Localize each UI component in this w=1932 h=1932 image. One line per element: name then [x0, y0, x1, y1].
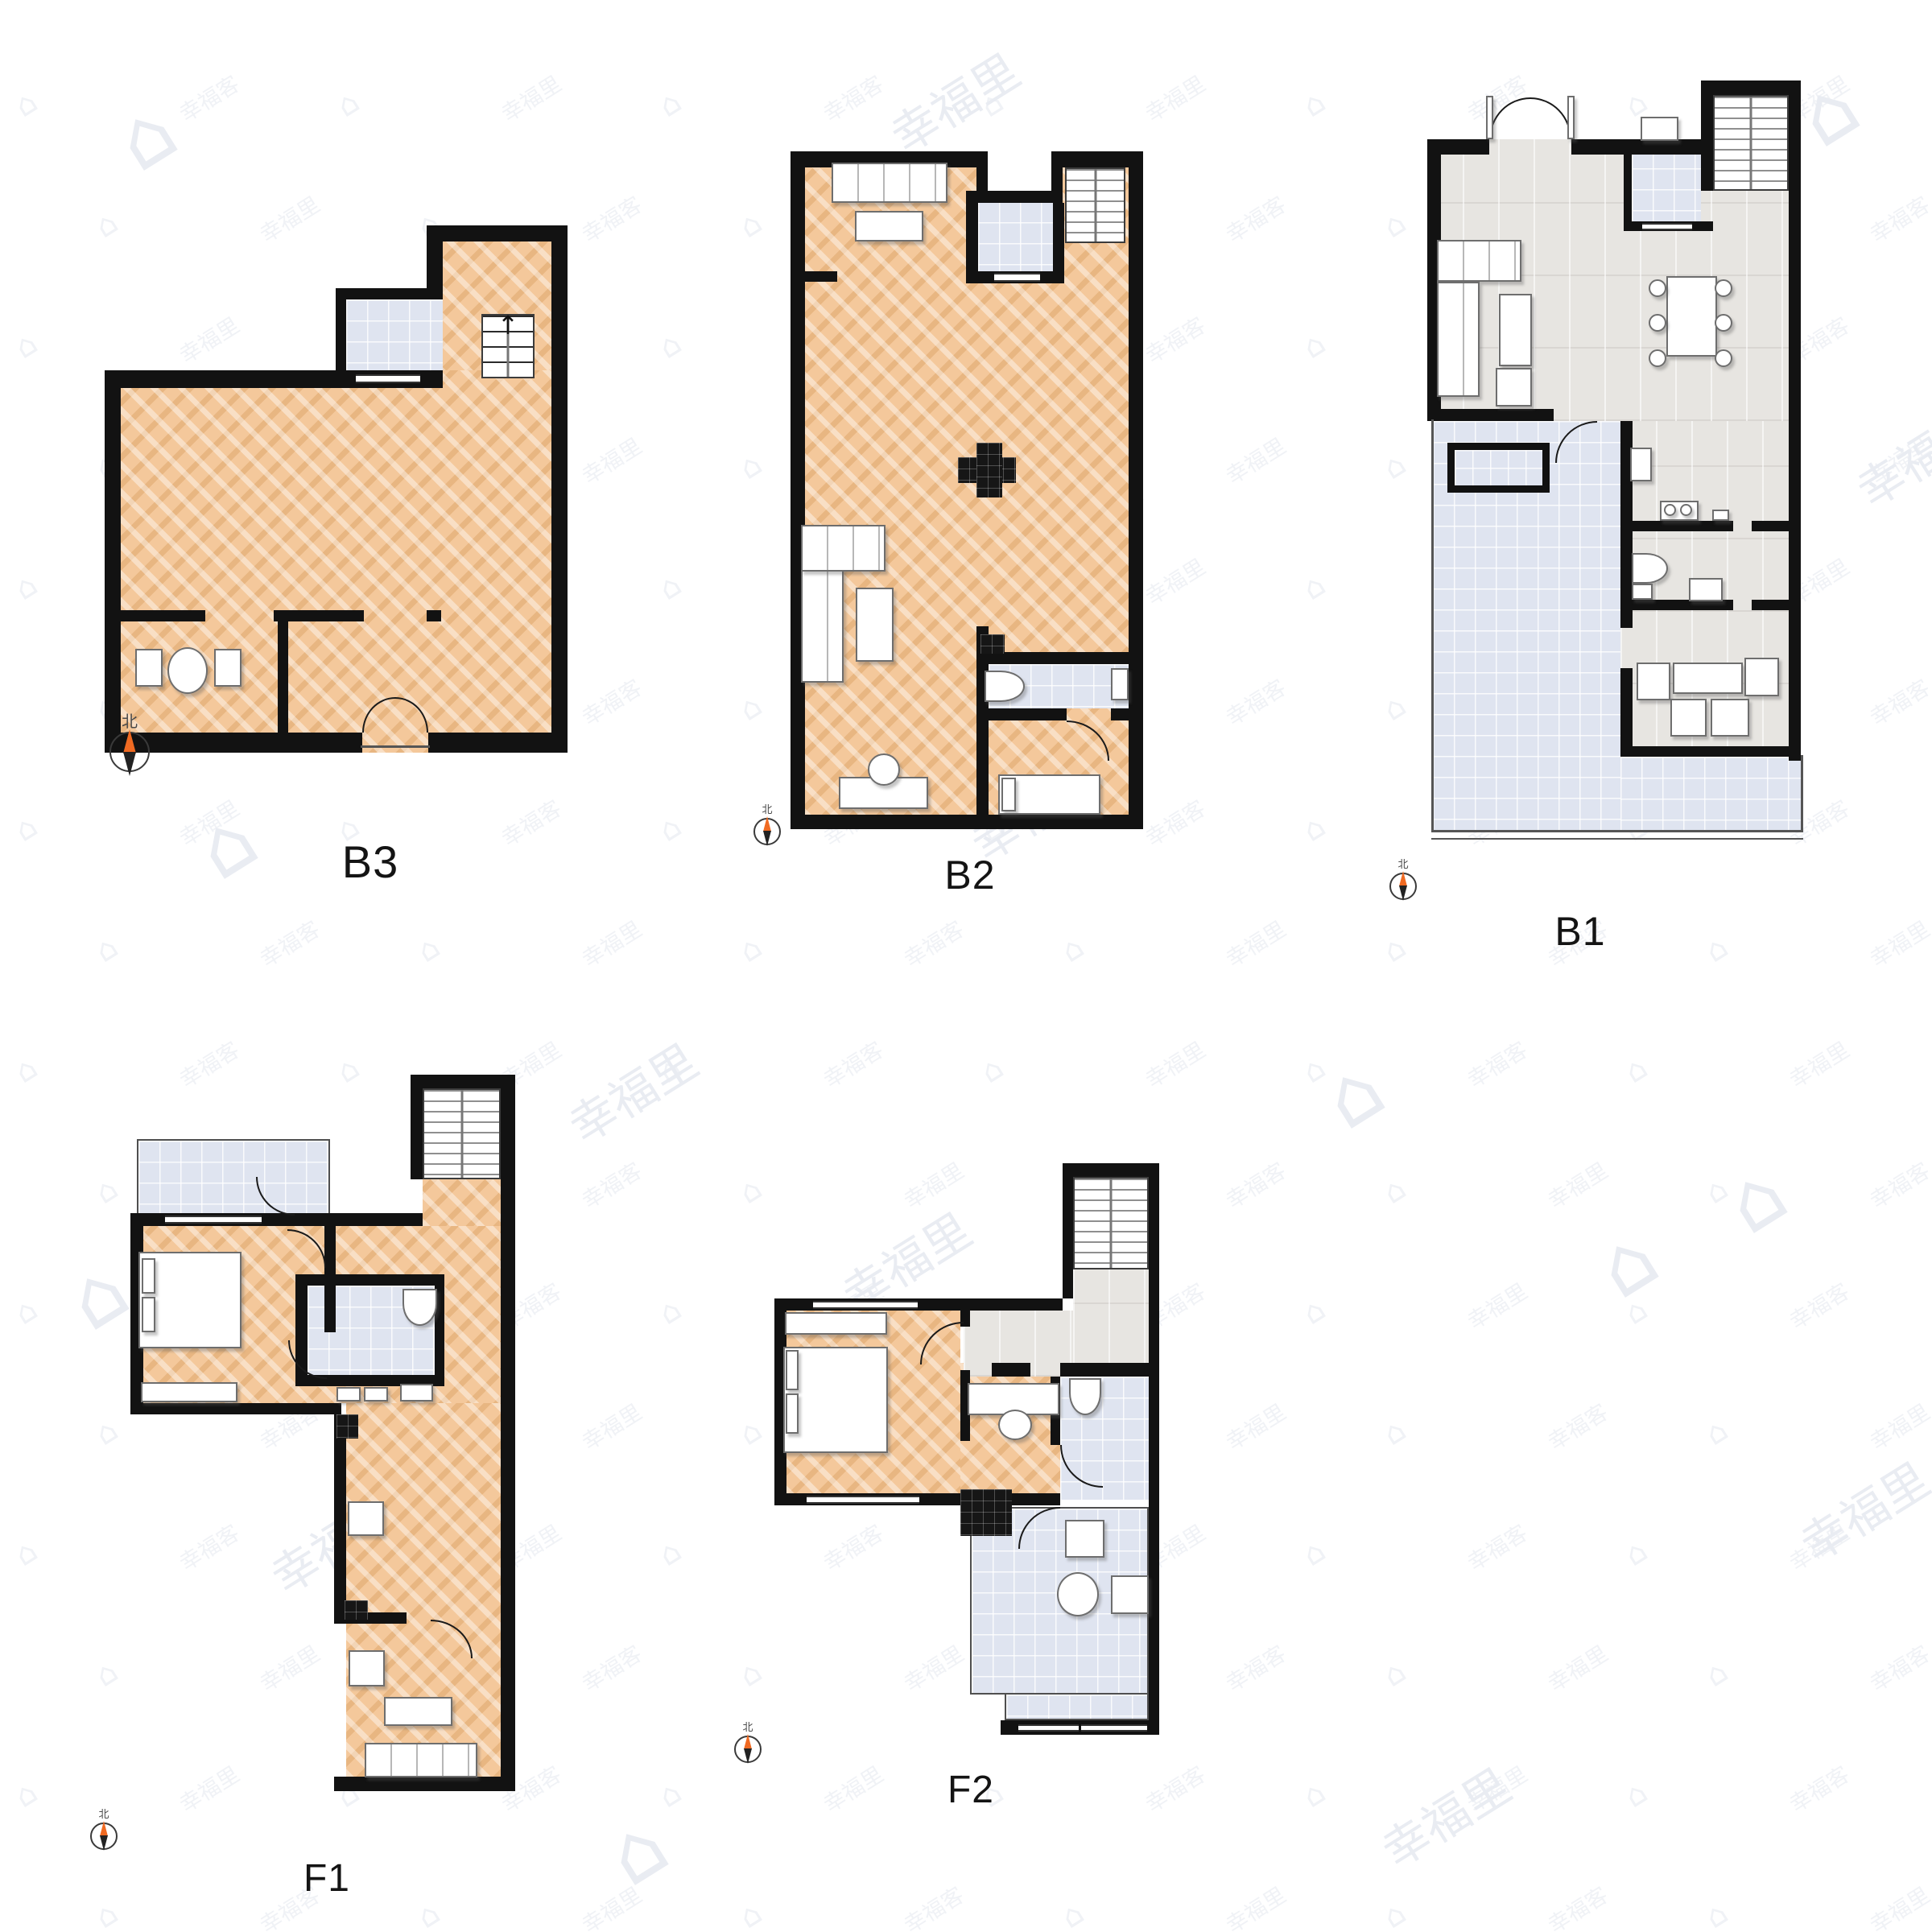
tile-floor [1632, 147, 1701, 221]
stairs-rail [460, 1090, 463, 1178]
watermark-house-icon: ⌂ [1298, 1534, 1331, 1571]
wall [984, 708, 1067, 720]
watermark-house-icon: ⌂ [1620, 1051, 1653, 1088]
furniture-round [1680, 504, 1692, 516]
watermark-text: 幸福客 [0, 194, 2, 247]
furniture [1670, 699, 1707, 737]
watermark-house-icon: ⌂ [1378, 448, 1411, 484]
furniture [1499, 294, 1532, 366]
watermark-house-icon: ⌂ [1700, 1897, 1733, 1932]
watermark-house-icon: ⌂ [654, 810, 687, 846]
wood-floor [105, 370, 568, 753]
watermark-house-icon: ⌂ [1378, 0, 1411, 2]
watermark-text: 幸福客 [579, 1643, 646, 1696]
wall [1701, 80, 1713, 191]
watermark-text: 幸福里 [1867, 1885, 1932, 1932]
border-line [1431, 419, 1434, 832]
watermark-text: 幸福客 [0, 677, 2, 730]
wall [411, 1075, 515, 1088]
compass-f2: 北 [734, 1723, 762, 1763]
watermark-house-icon: ⌂ [1056, 931, 1089, 967]
watermark-text: 幸福里 [1223, 436, 1290, 489]
wall [428, 733, 568, 753]
watermark-text: 幸福客 [1223, 1160, 1290, 1213]
watermark-house-icon: ⌂ [412, 0, 445, 2]
watermark-text: 幸福客 [1142, 798, 1209, 851]
furniture [1666, 276, 1717, 357]
compass-f1: 北 [90, 1810, 118, 1850]
watermark-text: 幸福里 [1223, 919, 1290, 972]
window [813, 1301, 918, 1309]
compass-north-label: 北 [762, 805, 772, 815]
watermark-house-icon: ⌂ [90, 931, 123, 967]
compass-b3: 北 [109, 713, 150, 772]
terrace-floor [137, 1139, 330, 1218]
furniture [856, 588, 894, 662]
compass-needle-north [763, 816, 771, 832]
watermark-text: 幸福里 [1464, 1281, 1531, 1334]
furniture [135, 649, 163, 687]
watermark-house-icon: ⌂ [1298, 1776, 1331, 1812]
wall [1571, 139, 1703, 155]
wall [1701, 80, 1801, 95]
wall [1053, 203, 1064, 276]
watermark-house-icon: ⌂ [1378, 206, 1411, 242]
watermark-text: 幸福客 [1867, 677, 1932, 730]
staircase [1713, 95, 1789, 191]
furniture [783, 1347, 888, 1453]
wall [1051, 151, 1063, 203]
furniture [336, 1387, 361, 1402]
watermark-house-icon: ⌂ [1584, 1216, 1670, 1311]
wall [992, 1363, 1030, 1377]
wall [130, 1403, 341, 1414]
watermark-house-icon: ⌂ [976, 1051, 1009, 1088]
border-line [1431, 830, 1803, 832]
border-line [361, 745, 430, 748]
watermark-text: 幸福里 [0, 919, 2, 972]
stairs-rail [1750, 97, 1752, 189]
compass-north-label: 北 [1397, 860, 1408, 870]
sofa [365, 1743, 477, 1777]
furniture-round [1715, 279, 1732, 297]
wall [1752, 600, 1789, 610]
furniture [1712, 510, 1729, 521]
watermark-house-icon: ⌂ [10, 1776, 43, 1812]
tile-floor [978, 201, 1053, 271]
window [356, 374, 420, 383]
compass-dial-icon [109, 732, 150, 772]
stairs-rail [1094, 169, 1096, 242]
watermark-text: 幸福客 [1545, 0, 1612, 5]
window [1642, 223, 1692, 230]
black-fixture [976, 443, 1002, 497]
furniture [142, 1258, 155, 1294]
watermark-text: 幸福里 [579, 0, 646, 5]
wall [278, 621, 288, 737]
watermark-text: 幸福里 [0, 0, 2, 5]
watermark-text: 幸福客 [901, 919, 968, 972]
watermark-house-icon: ⌂ [90, 1414, 123, 1450]
plan-b2 [791, 151, 1143, 829]
watermark-house-icon: ⌂ [1298, 327, 1331, 363]
watermark-house-icon: ⌂ [90, 1655, 123, 1691]
wall [1624, 147, 1632, 231]
compass-b2: 北 [753, 805, 781, 845]
wall [411, 1075, 423, 1179]
wall [105, 370, 348, 388]
compass-needle-south [123, 752, 136, 776]
wall [334, 1414, 346, 1624]
compass-needle-south [763, 831, 771, 846]
watermark-text: 幸福里 [1142, 73, 1209, 126]
staircase: ↑ [481, 314, 535, 378]
watermark-text: 幸福里 [1223, 1402, 1290, 1455]
watermark-text: 幸福里 [1142, 556, 1209, 609]
sofa [1437, 282, 1480, 397]
watermark-house-icon: ⌂ [1713, 1152, 1799, 1247]
wall [1752, 521, 1789, 531]
watermark-house-icon: ⌂ [1311, 1047, 1397, 1142]
furniture-round [167, 647, 208, 694]
sofa [832, 163, 947, 203]
furniture [1689, 578, 1723, 601]
wall [1063, 1163, 1073, 1298]
wall [1789, 80, 1801, 761]
watermark-house-icon: ⌂ [332, 85, 365, 122]
compass-dial-icon [1389, 873, 1417, 900]
watermark-house-icon: ⌂ [10, 327, 43, 363]
plan-f1 [125, 1075, 515, 1791]
wall [336, 288, 443, 299]
watermark-house-icon: ⌂ [10, 810, 43, 846]
watermark-house-icon: ⌂ [1056, 1897, 1089, 1932]
furniture-round [1715, 314, 1732, 332]
black-fixture [345, 1600, 368, 1620]
wall [105, 370, 121, 753]
window [165, 1216, 262, 1224]
watermark-text: 幸福客 [820, 73, 887, 126]
watermark-text: 幸福客 [579, 677, 646, 730]
furniture-round [868, 753, 900, 786]
furniture [1567, 96, 1575, 139]
window [1081, 1724, 1147, 1732]
watermark-house-icon: ⌂ [654, 1293, 687, 1329]
watermark-text: 幸福里 [1223, 0, 1290, 5]
furniture [364, 1387, 388, 1402]
watermark-text: 幸福里 [1142, 1039, 1209, 1092]
wall [1624, 746, 1801, 757]
compass-needle-north [1399, 871, 1407, 886]
compass-b1: 北 [1389, 860, 1417, 900]
compass-needle-south [100, 1835, 108, 1851]
furniture [349, 1650, 385, 1686]
black-fixture [960, 1489, 1012, 1536]
terrace-floor [1005, 1693, 1149, 1720]
watermark-text: 幸福客 [1786, 1764, 1853, 1817]
wall [1149, 1163, 1159, 1735]
furniture [1496, 368, 1532, 407]
furniture [786, 1350, 799, 1390]
watermark-house-icon: ⌂ [1700, 1414, 1733, 1450]
furniture-round [1057, 1572, 1099, 1616]
sofa [1437, 240, 1521, 282]
watermark-text: 幸福客 [1786, 1281, 1853, 1334]
staircase [1073, 1177, 1149, 1269]
watermark-text: 幸福里 [562, 1037, 705, 1150]
watermark-text: 幸福里 [0, 1885, 2, 1932]
watermark-house-icon: ⌂ [10, 1293, 43, 1329]
watermark-house-icon: ⌂ [654, 85, 687, 122]
compass-north-label: 北 [122, 713, 138, 729]
watermark-text: 幸福客 [1867, 1160, 1932, 1213]
furniture [142, 1297, 155, 1332]
watermark-text: 幸福客 [498, 798, 565, 851]
tile-floor [346, 299, 443, 376]
watermark-house-icon: ⌂ [10, 1051, 43, 1088]
furniture [785, 1312, 887, 1335]
wall [976, 191, 1063, 203]
watermark-house-icon: ⌂ [90, 1172, 123, 1208]
compass-dial-icon [90, 1823, 118, 1850]
compass-needle-north [123, 729, 136, 753]
watermark-house-icon: ⌂ [90, 0, 123, 2]
watermark-house-icon: ⌂ [1056, 0, 1089, 2]
furniture [786, 1393, 799, 1434]
window [807, 1496, 919, 1504]
watermark-house-icon: ⌂ [412, 1897, 445, 1932]
watermark-house-icon: ⌂ [90, 1897, 123, 1932]
compass-dial-icon [753, 818, 781, 845]
furniture [1111, 1575, 1149, 1614]
wall [274, 610, 364, 621]
watermark-house-icon: ⌂ [594, 1804, 680, 1899]
watermark-text: 幸福客 [1142, 1764, 1209, 1817]
watermark-house-icon: ⌂ [734, 1655, 767, 1691]
plan-label-b3: B3 [302, 836, 439, 888]
gray-wood-floor [1073, 1269, 1149, 1377]
watermark-text: 幸福里 [579, 436, 646, 489]
furniture [384, 1697, 452, 1726]
watermark-text: 幸福里 [1794, 1455, 1932, 1569]
plan-f2 [774, 1163, 1159, 1735]
wall [105, 610, 205, 621]
watermark-house-icon: ⌂ [734, 1172, 767, 1208]
furniture-round [1649, 314, 1666, 332]
compass-needle-south [1399, 885, 1407, 901]
window [1018, 1724, 1079, 1732]
watermark-text: 幸福客 [1867, 194, 1932, 247]
compass-north-label: 北 [742, 1723, 753, 1733]
watermark-text: 幸福客 [0, 1643, 2, 1696]
watermark-house-icon: ⌂ [1700, 931, 1733, 967]
watermark-house-icon: ⌂ [10, 568, 43, 605]
black-fixture [336, 1414, 358, 1439]
watermark-text: 幸福客 [579, 1160, 646, 1213]
wall [1060, 1363, 1149, 1377]
furniture-round [998, 1410, 1032, 1440]
watermark-house-icon: ⌂ [412, 931, 445, 967]
watermark-house-icon: ⌂ [734, 448, 767, 484]
furniture-round [1715, 349, 1732, 367]
watermark-house-icon: ⌂ [1298, 1293, 1331, 1329]
watermark-house-icon: ⌂ [654, 568, 687, 605]
plan-label-f2: F2 [902, 1768, 1039, 1812]
watermark-house-icon: ⌂ [654, 1776, 687, 1812]
furniture [1711, 699, 1749, 737]
watermark-house-icon: ⌂ [1378, 931, 1411, 967]
watermark-text: 幸福客 [901, 0, 968, 5]
watermark-text: 幸福客 [176, 73, 243, 126]
wall [984, 652, 1143, 664]
door-arc [1530, 97, 1571, 139]
border-line [1431, 838, 1803, 840]
wall [791, 151, 805, 829]
watermark-house-icon: ⌂ [1700, 1655, 1733, 1691]
furniture [1641, 117, 1678, 141]
watermark-house-icon: ⌂ [654, 1534, 687, 1571]
watermark-house-icon: ⌂ [1378, 1897, 1411, 1932]
wall [427, 610, 441, 621]
watermark-house-icon: ⌂ [1298, 810, 1331, 846]
furniture [1632, 584, 1653, 600]
watermark-house-icon: ⌂ [1298, 85, 1331, 122]
furniture [214, 649, 242, 687]
watermark-house-icon: ⌂ [1298, 568, 1331, 605]
tile-floor [1620, 757, 1803, 831]
wall [805, 271, 837, 282]
sofa [801, 525, 885, 572]
wall [1427, 409, 1554, 421]
furniture [1065, 1520, 1104, 1558]
wall [501, 1075, 515, 1791]
watermark-text: 幸福里 [884, 47, 1027, 160]
watermark-text: 幸福里 [1850, 401, 1932, 514]
furniture [400, 1384, 433, 1402]
watermark-text: 幸福客 [820, 1039, 887, 1092]
watermark-text: 幸福里 [1867, 1402, 1932, 1455]
wall [551, 225, 568, 753]
closet [1447, 443, 1550, 493]
watermark-text: 幸福里 [579, 1402, 646, 1455]
wall [295, 1274, 444, 1286]
cutout [988, 151, 1053, 193]
watermark-text: 幸福里 [820, 1764, 887, 1817]
watermark-text: 幸福客 [1867, 1643, 1932, 1696]
watermark-house-icon: ⌂ [10, 85, 43, 122]
furniture [1637, 663, 1670, 700]
watermark-house-icon: ⌂ [734, 931, 767, 967]
black-fixture [980, 634, 1005, 654]
watermark-house-icon: ⌂ [10, 1534, 43, 1571]
furniture [1111, 668, 1129, 700]
watermark-text: 幸福客 [1223, 677, 1290, 730]
wall [791, 815, 1143, 829]
furniture-round [1649, 349, 1666, 367]
furniture [1744, 658, 1779, 696]
compass-needle-north [744, 1734, 752, 1749]
watermark-house-icon: ⌂ [654, 327, 687, 363]
watermark-text: 幸福里 [498, 73, 565, 126]
watermark-text: 幸福客 [1223, 194, 1290, 247]
watermark-house-icon: ⌂ [184, 798, 270, 893]
wall [334, 1777, 515, 1791]
watermark-house-icon: ⌂ [1700, 0, 1733, 2]
wall [966, 191, 978, 283]
watermark-text: 幸福客 [257, 0, 324, 5]
watermark-text: 幸福客 [0, 1160, 2, 1213]
watermark-text: 幸福客 [579, 194, 646, 247]
wall [427, 225, 568, 242]
wall [1111, 708, 1129, 720]
wall [1629, 521, 1733, 531]
watermark-text: 幸福里 [1786, 1039, 1853, 1092]
watermark-text: 幸福客 [1464, 1039, 1531, 1092]
wall [1620, 668, 1633, 757]
watermark-house-icon: ⌂ [734, 206, 767, 242]
watermark-house-icon: ⌂ [1378, 1172, 1411, 1208]
furniture [1486, 96, 1493, 139]
watermark-house-icon: ⌂ [1620, 1776, 1653, 1812]
stairs-up-arrow-icon: ↑ [497, 312, 519, 338]
watermark-house-icon: ⌂ [734, 689, 767, 725]
wall [1063, 1163, 1159, 1177]
watermark-house-icon: ⌂ [1378, 1655, 1411, 1691]
watermark-text: 幸福里 [1867, 919, 1932, 972]
plan-b3: ↑ [105, 225, 568, 753]
watermark-text: 幸福客 [1545, 1885, 1612, 1932]
watermark-house-icon: ⌂ [1620, 1534, 1653, 1571]
watermark-text: 幸福客 [1464, 1522, 1531, 1575]
watermark-text: 幸福客 [257, 919, 324, 972]
watermark-text: 幸福里 [0, 436, 2, 489]
watermark-text: 幸福里 [1867, 0, 1932, 5]
plan-label-b2: B2 [902, 852, 1038, 898]
plan-label-f1: F1 [258, 1856, 395, 1901]
watermark-text: 幸福里 [1545, 1160, 1612, 1213]
watermark-text: 幸福里 [579, 919, 646, 972]
staircase [423, 1088, 501, 1179]
window [994, 273, 1040, 282]
watermark-text: 幸福里 [1375, 1761, 1518, 1875]
furniture-round [1664, 504, 1676, 516]
watermark-text: 幸福里 [0, 1402, 2, 1455]
furniture [1673, 663, 1743, 694]
wall [1129, 151, 1143, 829]
watermark-text: 幸福里 [1545, 1643, 1612, 1696]
plan-label-b1: B1 [1512, 908, 1649, 955]
watermark-house-icon: ⌂ [734, 1897, 767, 1932]
furniture [1001, 778, 1016, 811]
watermark-house-icon: ⌂ [103, 89, 189, 184]
compass-dial-icon [734, 1736, 762, 1763]
watermark-text: 幸福里 [1223, 1885, 1290, 1932]
watermark-house-icon: ⌂ [734, 0, 767, 2]
furniture [348, 1501, 384, 1536]
compass-needle-north [100, 1821, 108, 1836]
staircase [1065, 167, 1125, 243]
watermark-house-icon: ⌂ [1378, 689, 1411, 725]
watermark-text: 幸福客 [1142, 315, 1209, 368]
compass-north-label: 北 [98, 1810, 109, 1820]
floorplan-sheet: 幸福里⌂幸福客⌂幸福里⌂幸福客⌂幸福里⌂幸福客⌂幸福里⌂⌂幸福客⌂幸福里⌂幸福客… [0, 0, 1932, 1932]
furniture [1630, 448, 1652, 481]
watermark-text: 幸福客 [901, 1885, 968, 1932]
stairs-rail [1110, 1179, 1113, 1268]
plan-b1 [1427, 80, 1803, 841]
watermark-house-icon: ⌂ [734, 1414, 767, 1450]
door-arc [1489, 97, 1530, 139]
